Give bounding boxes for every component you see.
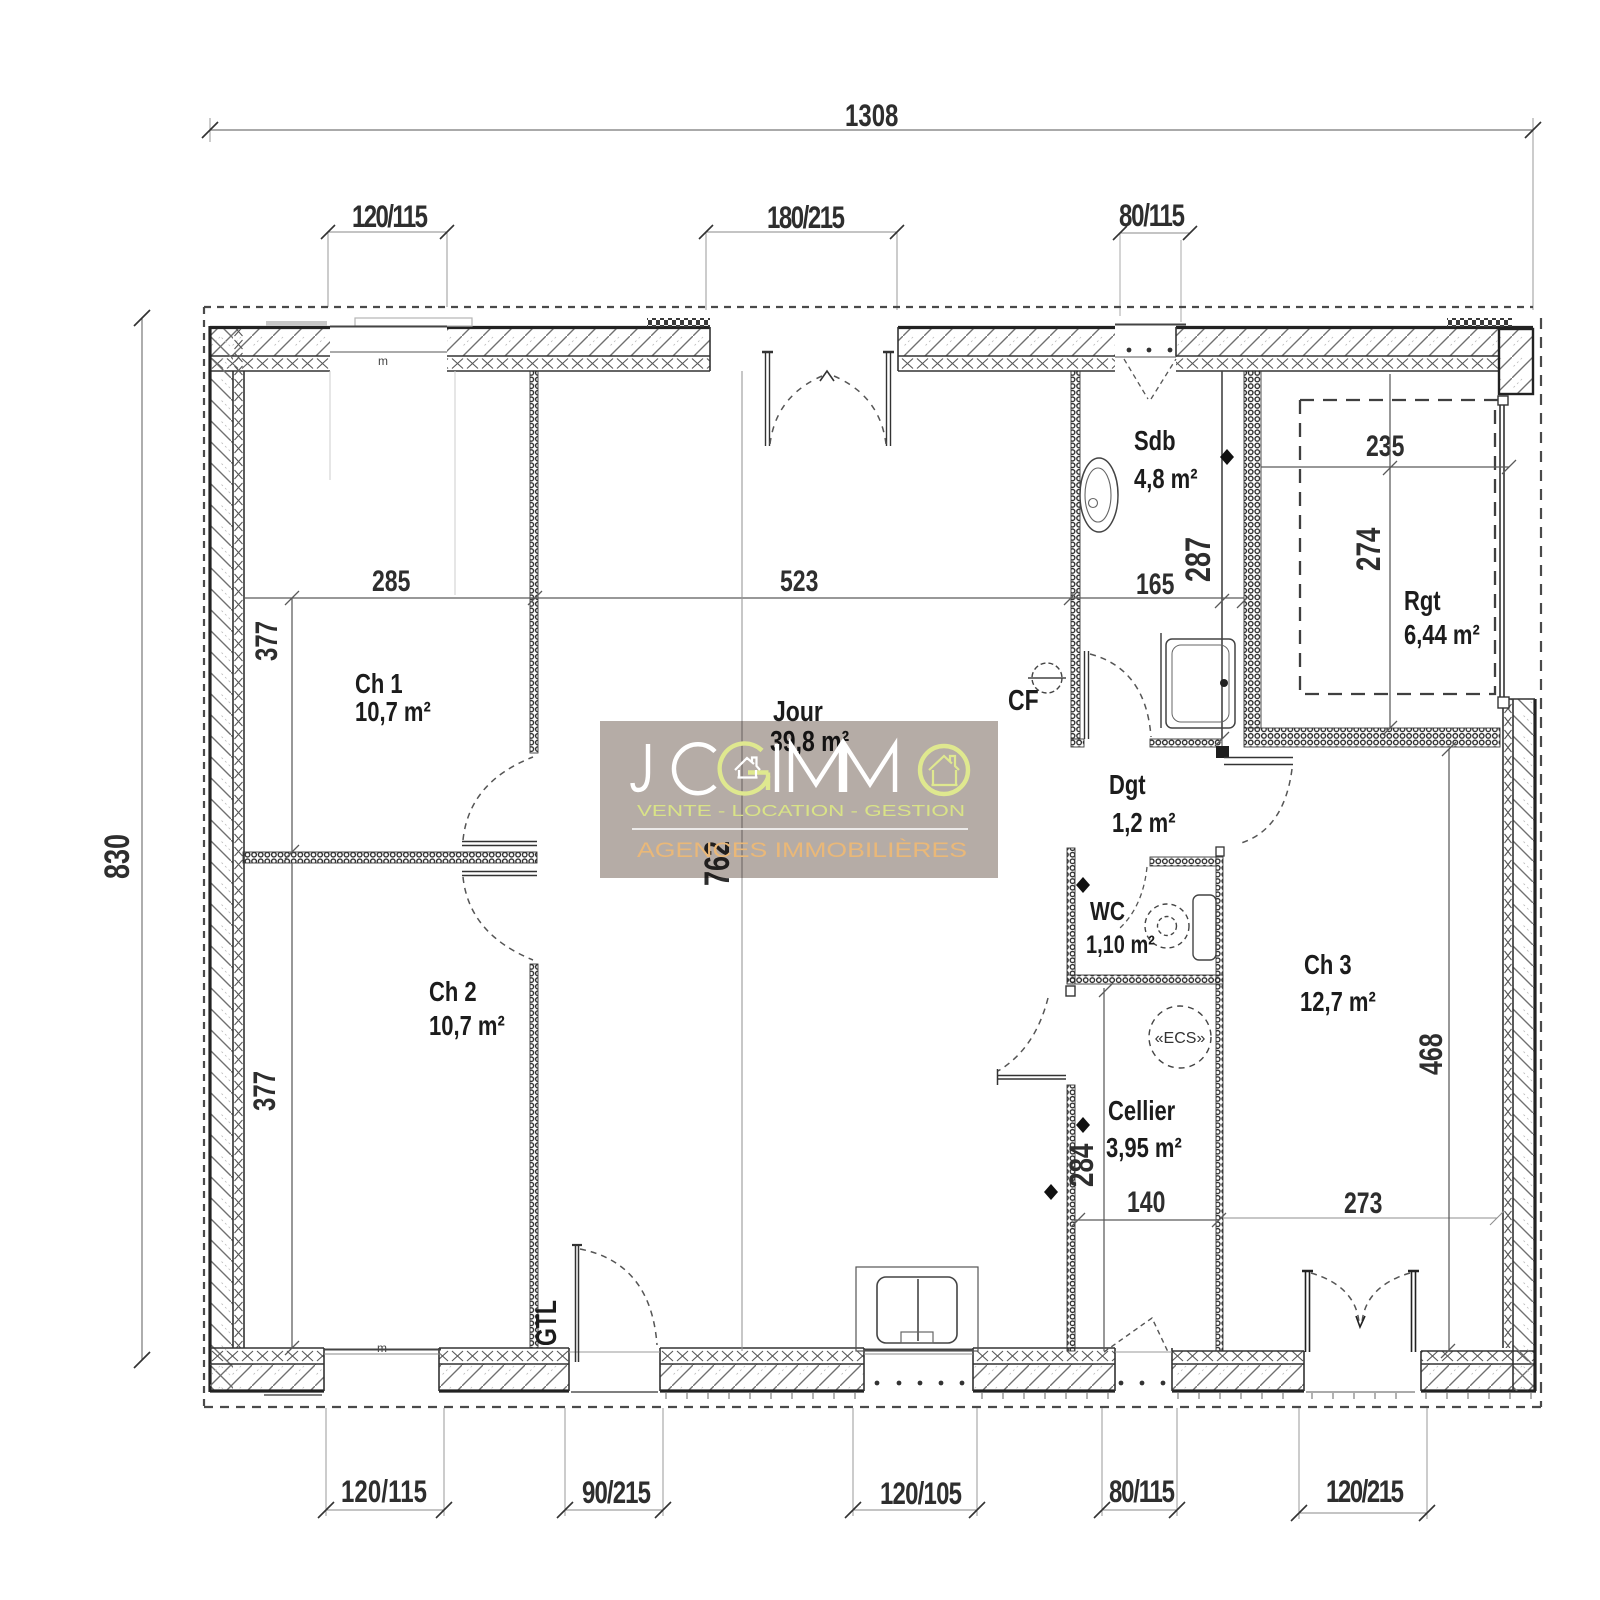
svg-text:4,8 m²: 4,8 m²	[1134, 464, 1198, 495]
svg-text:377: 377	[247, 1071, 282, 1111]
svg-text:m: m	[378, 354, 388, 368]
svg-text:10,7 m²: 10,7 m²	[355, 697, 431, 728]
svg-text:140: 140	[1127, 1185, 1165, 1219]
svg-text:287: 287	[1179, 537, 1218, 582]
svg-text:VENTE - LOCATION - GESTION: VENTE - LOCATION - GESTION	[637, 803, 965, 820]
svg-text:80/115: 80/115	[1109, 1474, 1175, 1509]
svg-text:235: 235	[1366, 429, 1404, 463]
svg-text:165: 165	[1136, 567, 1174, 601]
svg-text:Ch 2: Ch 2	[429, 977, 477, 1008]
svg-text:284: 284	[1064, 1143, 1101, 1187]
svg-text:523: 523	[780, 564, 818, 598]
svg-text:m: m	[377, 1341, 387, 1355]
svg-text:1,2 m²: 1,2 m²	[1112, 808, 1176, 839]
svg-text:Ch 1: Ch 1	[355, 669, 403, 700]
svg-text:120/215: 120/215	[1326, 1474, 1404, 1509]
svg-text:GTL: GTL	[529, 1300, 562, 1346]
svg-text:6,44 m²: 6,44 m²	[1404, 620, 1480, 651]
svg-text:Sdb: Sdb	[1134, 426, 1176, 457]
svg-text:285: 285	[372, 564, 410, 598]
svg-text:468: 468	[1414, 1033, 1450, 1075]
svg-text:Dgt: Dgt	[1109, 770, 1146, 801]
svg-text:377: 377	[249, 621, 284, 661]
svg-text:AGENCES IMMOBILIÈRES: AGENCES IMMOBILIÈRES	[637, 839, 967, 862]
svg-text:120/105: 120/105	[880, 1476, 962, 1511]
svg-text:12,7 m²: 12,7 m²	[1300, 987, 1376, 1018]
svg-text:CF: CF	[1008, 683, 1039, 716]
svg-text:274: 274	[1351, 527, 1388, 571]
svg-text:830: 830	[98, 834, 137, 879]
svg-text:WC: WC	[1090, 897, 1125, 927]
svg-text:180/215: 180/215	[767, 200, 845, 235]
svg-text:Rgt: Rgt	[1404, 586, 1441, 617]
svg-text:Cellier: Cellier	[1108, 1096, 1176, 1127]
svg-text:10,7 m²: 10,7 m²	[429, 1011, 505, 1042]
svg-text:1308: 1308	[845, 98, 898, 133]
svg-text:120/115: 120/115	[341, 1474, 427, 1509]
svg-text:273: 273	[1344, 1186, 1382, 1220]
svg-text:90/215: 90/215	[582, 1475, 651, 1510]
svg-text:«ECS»: «ECS»	[1155, 1030, 1206, 1047]
svg-text:Ch 3: Ch 3	[1304, 950, 1352, 981]
svg-text:1,10 m²: 1,10 m²	[1086, 931, 1155, 959]
svg-text:3,95 m²: 3,95 m²	[1106, 1133, 1182, 1164]
svg-text:80/115: 80/115	[1119, 198, 1185, 233]
svg-text:120/115: 120/115	[352, 199, 428, 234]
